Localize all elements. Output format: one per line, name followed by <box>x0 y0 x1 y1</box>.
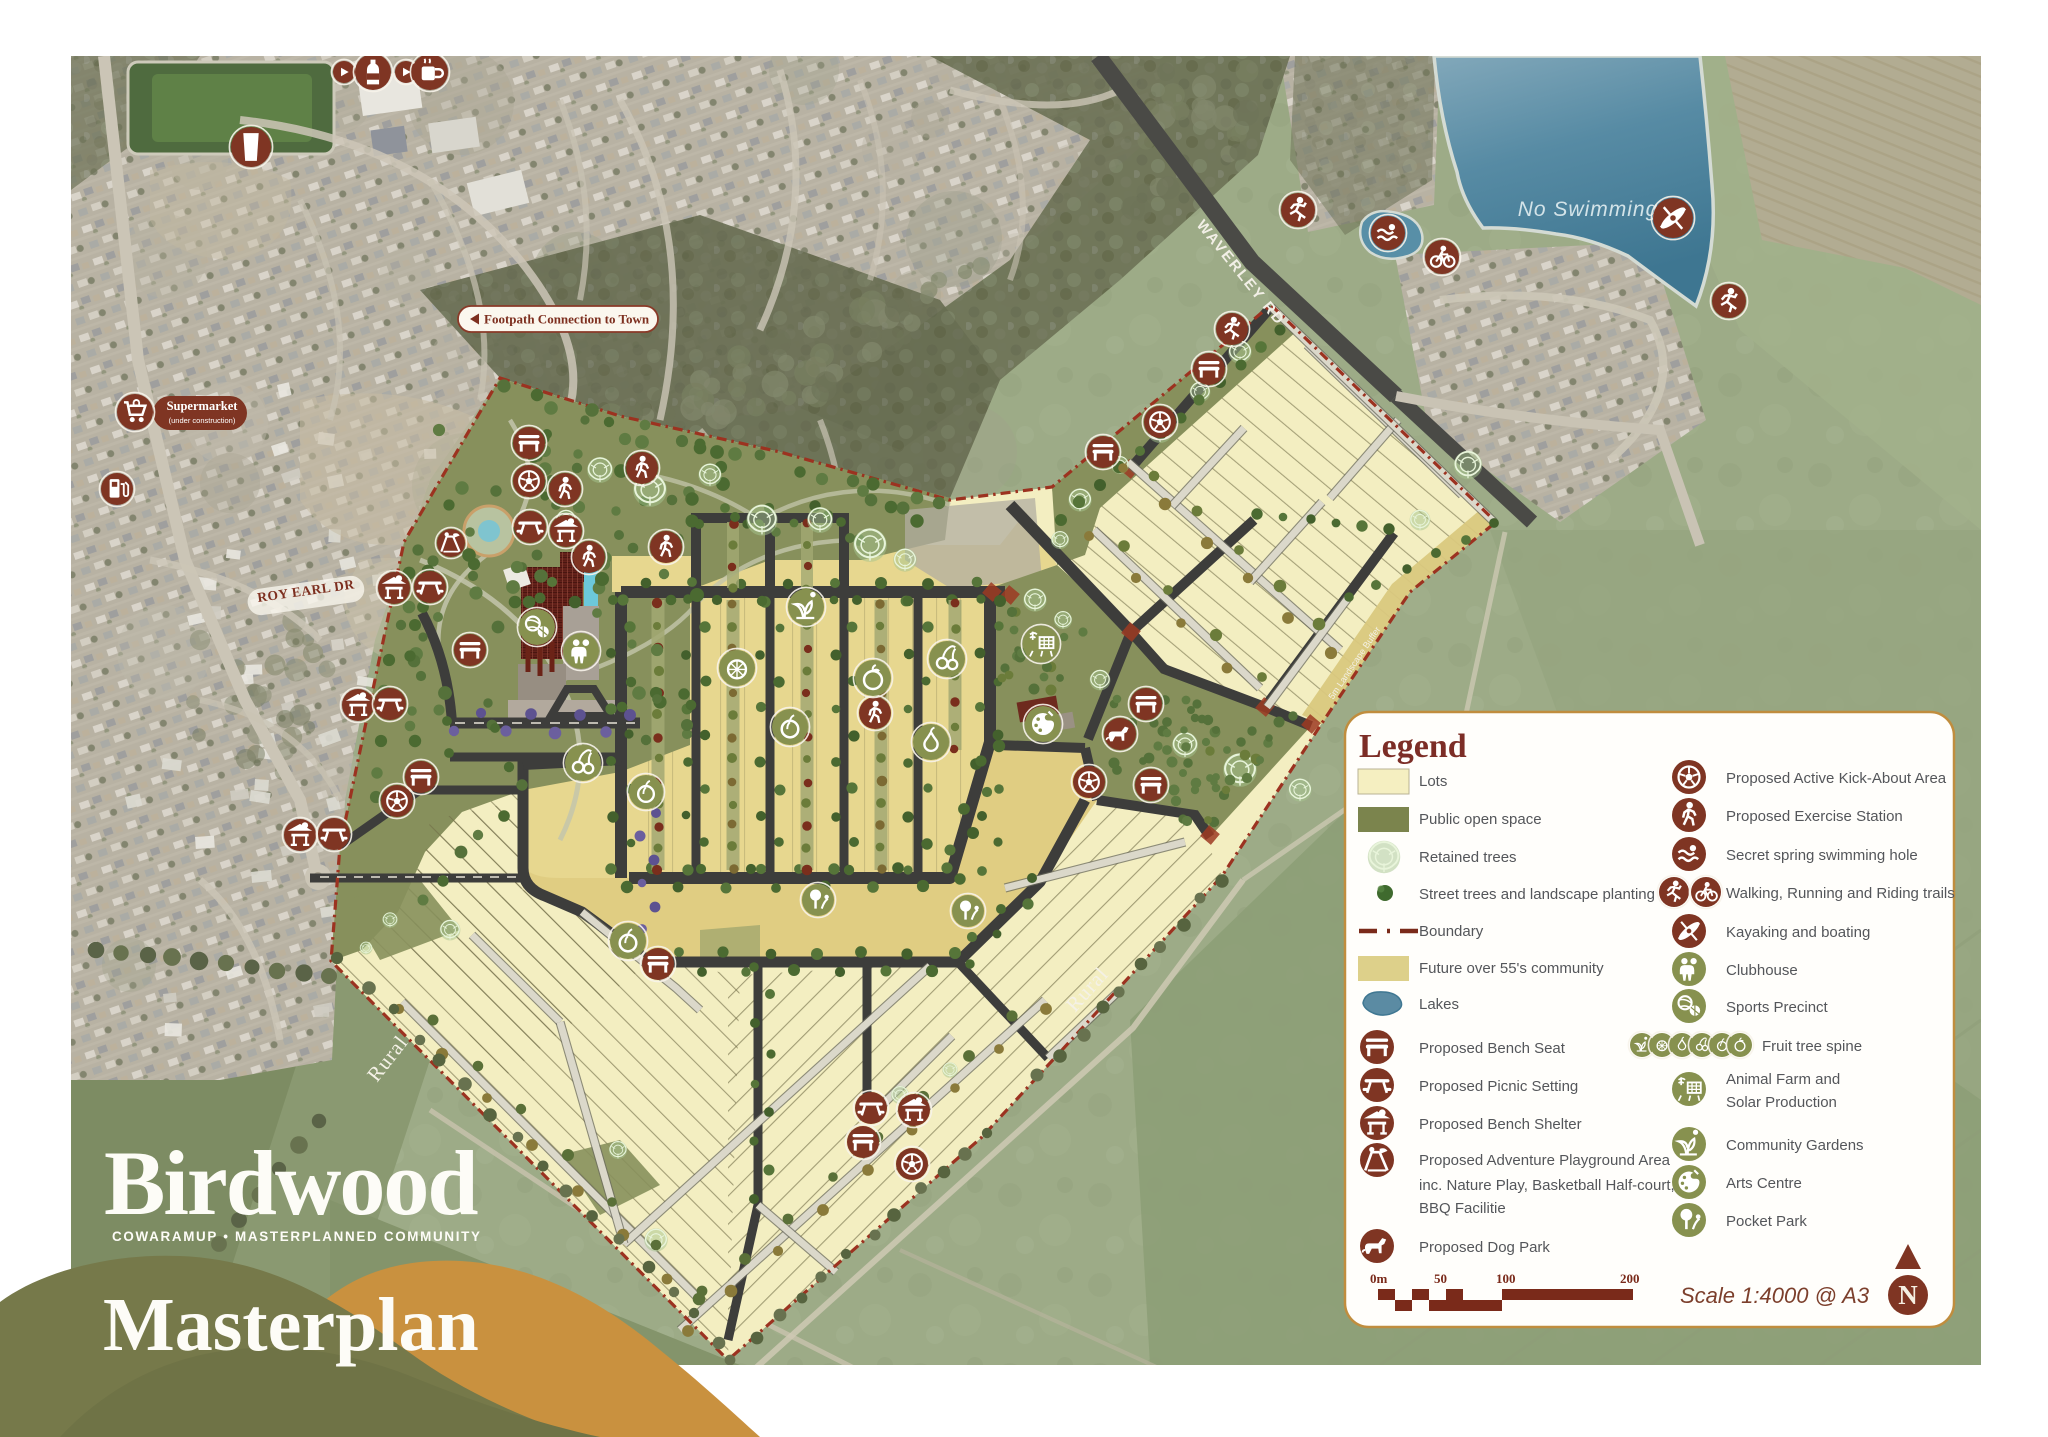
svg-text:Proposed Active Kick-About Are: Proposed Active Kick-About Area <box>1726 770 1947 787</box>
svg-text:Lakes: Lakes <box>1419 996 1459 1013</box>
svg-text:No Swimming: No Swimming <box>1518 198 1659 221</box>
svg-text:Footpath Connection to Town: Footpath Connection to Town <box>484 312 650 327</box>
svg-text:Birdwood: Birdwood <box>104 1132 478 1234</box>
svg-text:Sports Precinct: Sports Precinct <box>1726 999 1829 1016</box>
svg-text:Animal Farm and: Animal Farm and <box>1726 1071 1840 1088</box>
svg-text:Supermarket: Supermarket <box>167 399 239 413</box>
svg-text:Arts Centre: Arts Centre <box>1726 1175 1802 1192</box>
svg-text:Proposed Bench Shelter: Proposed Bench Shelter <box>1419 1116 1582 1133</box>
svg-text:100: 100 <box>1496 1271 1516 1286</box>
svg-text:Community Gardens: Community Gardens <box>1726 1137 1864 1154</box>
svg-text:N: N <box>1898 1280 1918 1310</box>
svg-text:Fruit tree spine: Fruit tree spine <box>1762 1038 1862 1055</box>
svg-text:Pocket Park: Pocket Park <box>1726 1213 1807 1230</box>
svg-text:Secret spring swimming hole: Secret spring swimming hole <box>1726 847 1918 864</box>
svg-text:Boundary: Boundary <box>1419 923 1484 940</box>
svg-text:Future over 55's community: Future over 55's community <box>1419 960 1604 977</box>
svg-text:COWARAMUP • MASTERPLANNED COMM: COWARAMUP • MASTERPLANNED COMMUNITY <box>112 1229 482 1244</box>
svg-text:Solar Production: Solar Production <box>1726 1094 1837 1111</box>
svg-text:Lots: Lots <box>1419 773 1447 790</box>
svg-text:BBQ Facilitie: BBQ Facilitie <box>1419 1200 1506 1217</box>
svg-text:Proposed Dog Park: Proposed Dog Park <box>1419 1239 1550 1256</box>
svg-text:Walking, Running and Riding tr: Walking, Running and Riding trails <box>1726 885 1955 902</box>
svg-text:Masterplan: Masterplan <box>103 1283 479 1367</box>
svg-text:inc. Nature Play, Basketball H: inc. Nature Play, Basketball Half-court, <box>1419 1177 1675 1194</box>
svg-text:Public open space: Public open space <box>1419 811 1542 828</box>
svg-text:0m: 0m <box>1370 1271 1388 1286</box>
svg-text:Proposed Bench Seat: Proposed Bench Seat <box>1419 1040 1566 1057</box>
svg-text:Proposed Exercise Station: Proposed Exercise Station <box>1726 808 1903 825</box>
svg-text:50: 50 <box>1434 1271 1447 1286</box>
svg-text:Clubhouse: Clubhouse <box>1726 962 1798 979</box>
svg-text:200: 200 <box>1620 1271 1640 1286</box>
svg-text:Legend: Legend <box>1359 728 1467 765</box>
svg-text:Retained trees: Retained trees <box>1419 849 1517 866</box>
svg-text:Street trees and landscape pla: Street trees and landscape planting <box>1419 886 1655 903</box>
svg-text:Proposed Picnic Setting: Proposed Picnic Setting <box>1419 1078 1578 1095</box>
svg-text:(under construction): (under construction) <box>169 416 236 425</box>
svg-text:Scale 1:4000 @ A3: Scale 1:4000 @ A3 <box>1680 1283 1870 1308</box>
svg-text:Kayaking and boating: Kayaking and boating <box>1726 924 1870 941</box>
svg-text:Proposed Adventure Playground: Proposed Adventure Playground Area <box>1419 1152 1671 1169</box>
